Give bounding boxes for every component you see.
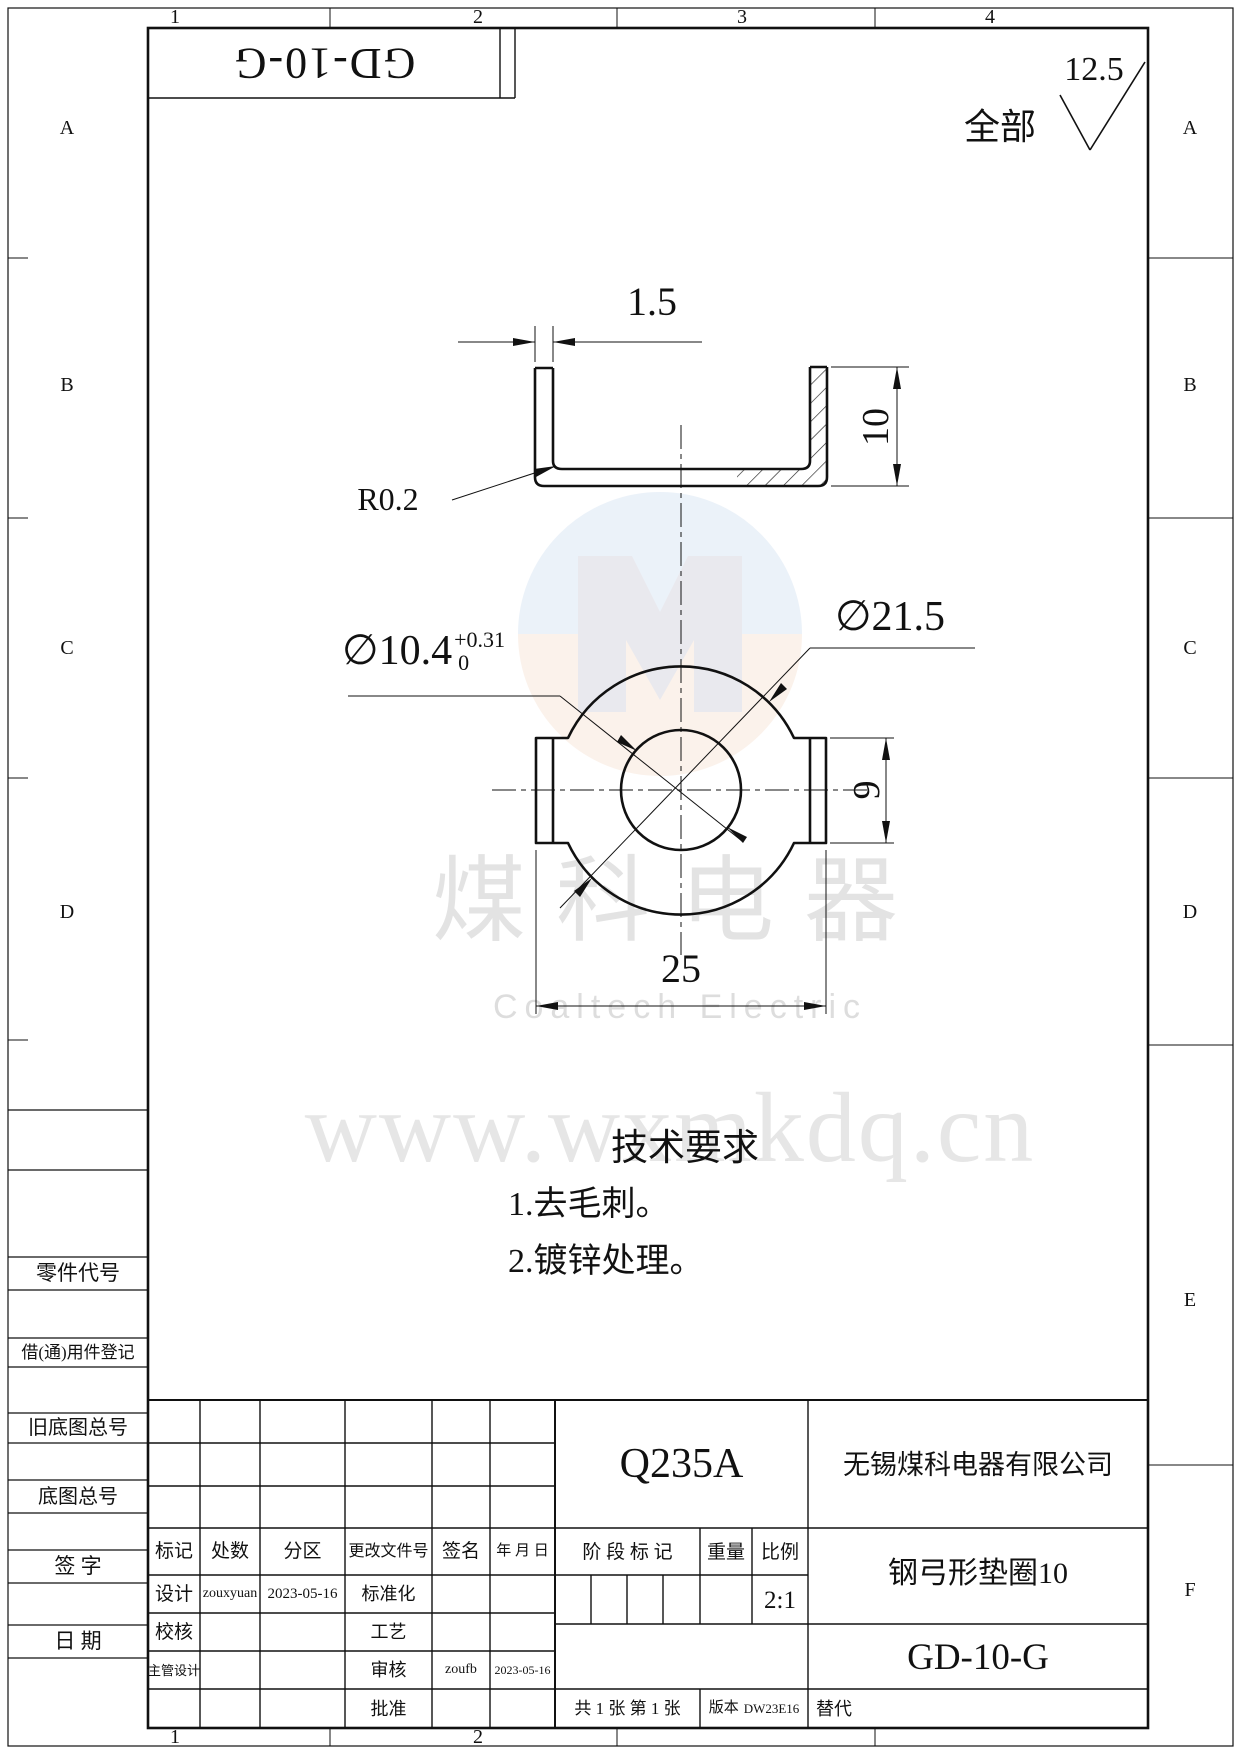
zone-right-f: F: [1175, 1578, 1205, 1602]
tb-scale-value: 2:1: [752, 1578, 808, 1622]
watermark-chinese: 煤科电器: [400, 842, 960, 960]
label-signature: 签 字: [8, 1550, 148, 1583]
zone-right-c: C: [1175, 636, 1205, 660]
logo-m-glyph: [578, 556, 742, 712]
dim-thickness: 1.5: [612, 280, 692, 324]
tb-design-date: 2023-05-16: [260, 1575, 345, 1613]
zone-left-d: D: [52, 900, 82, 924]
tb-version-value: DW23E16: [744, 1702, 800, 1715]
zone-bottom-1: 1: [160, 1726, 190, 1748]
tb-version-label: 版本: [709, 1701, 739, 1716]
tb-part-name: 钢弓形垫圈10: [810, 1546, 1146, 1602]
section-dim-arrows: [513, 338, 901, 486]
label-date: 日 期: [8, 1625, 148, 1658]
rotated-part-number: GD-10-G: [148, 28, 500, 98]
zone-top-2: 2: [463, 6, 493, 28]
tb-process-label: 工艺: [345, 1613, 432, 1651]
dim-outer: ∅21.5: [812, 594, 968, 640]
tb-version: 版本 DW23E16: [700, 1689, 808, 1728]
zone-top-3: 3: [727, 6, 757, 28]
tb-design-label: 设计: [148, 1575, 200, 1613]
tb-count: 处数: [200, 1528, 260, 1575]
tb-auditor: zoufb: [432, 1651, 490, 1689]
zone-left-c: C: [52, 636, 82, 660]
tb-scale-label: 比例: [752, 1530, 808, 1574]
tb-check-label: 校核: [148, 1613, 200, 1651]
zone-left-a: A: [52, 116, 82, 140]
tb-drawing-no: GD-10-G: [810, 1628, 1146, 1686]
tb-designer: zouxyuan: [200, 1575, 260, 1613]
section-view: [452, 326, 909, 500]
label-part-code: 零件代号: [8, 1257, 148, 1290]
section-hatch: [737, 367, 827, 486]
label-base-no: 底图总号: [8, 1480, 148, 1513]
tb-mark: 标记: [148, 1528, 200, 1575]
tb-zone: 分区: [260, 1528, 345, 1575]
tb-approve-label: 批准: [345, 1689, 432, 1728]
label-borrow-register: 借(通)用件登记: [8, 1338, 148, 1367]
tb-weight-label: 重量: [700, 1530, 752, 1574]
label-old-base-no: 旧底图总号: [8, 1413, 148, 1443]
zone-bottom-2: 2: [463, 1726, 493, 1748]
dim-width: 25: [648, 946, 714, 992]
dim-height: 10: [846, 396, 906, 458]
zone-top-4: 4: [975, 6, 1005, 28]
tb-signature: 签名: [432, 1528, 490, 1575]
dim-tab: 9: [837, 759, 897, 821]
tb-audit-label: 审核: [345, 1651, 432, 1689]
tb-standard-label: 标准化: [345, 1575, 432, 1613]
tb-stage-label: 阶 段 标 记: [557, 1530, 698, 1574]
tb-sheets: 共 1 张 第 1 张: [555, 1689, 700, 1728]
dim-hole-value: ∅10.4: [342, 630, 452, 672]
zone-left-b: B: [52, 373, 82, 397]
engineering-drawing-sheet: 煤科电器 Coaltech Electric www.wxmkdq.cn: [0, 0, 1241, 1754]
zone-right-d: D: [1175, 900, 1205, 924]
tech-req-item-1: 1.去毛刺。: [508, 1184, 768, 1226]
zone-right-e: E: [1175, 1288, 1205, 1312]
zone-top-1: 1: [160, 6, 190, 28]
finish-value: 12.5: [1052, 50, 1136, 90]
tb-replace-label: 替代: [816, 1689, 936, 1728]
tb-ymd: 年 月 日: [490, 1528, 555, 1575]
tb-audit-date: 2023-05-16: [490, 1651, 555, 1689]
tech-req-item-2: 2.镀锌处理。: [508, 1241, 808, 1283]
tb-change-doc: 更改文件号: [345, 1528, 432, 1575]
finish-scope-label: 全部: [958, 106, 1042, 148]
zone-right-b: B: [1175, 373, 1205, 397]
dim-hole: ∅10.4 +0.31 0: [342, 620, 562, 682]
tb-chief-label: 主管设计: [148, 1651, 200, 1689]
dim-hole-tolerance: +0.31 0: [454, 628, 505, 674]
dim-radius: R0.2: [346, 482, 430, 516]
tb-company: 无锡煤科电器有限公司: [810, 1434, 1146, 1496]
tb-material: Q235A: [555, 1428, 808, 1500]
tech-req-title: 技术要求: [595, 1126, 775, 1170]
zone-right-a: A: [1175, 116, 1205, 140]
